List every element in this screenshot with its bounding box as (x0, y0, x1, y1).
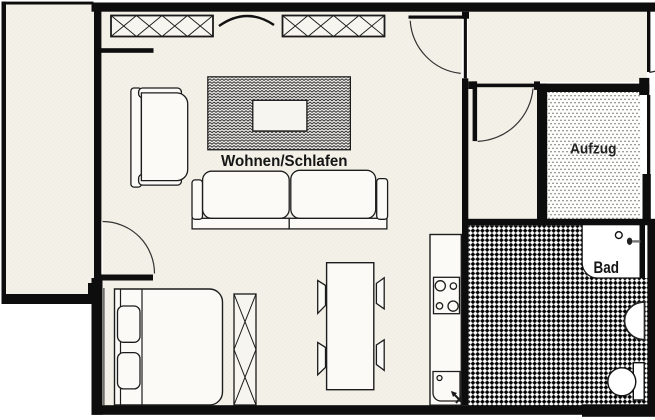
svg-text:Wohnen/Schlafen: Wohnen/Schlafen (221, 153, 348, 170)
svg-text:Aufzug: Aufzug (570, 141, 617, 157)
svg-text:Bad: Bad (594, 259, 620, 277)
